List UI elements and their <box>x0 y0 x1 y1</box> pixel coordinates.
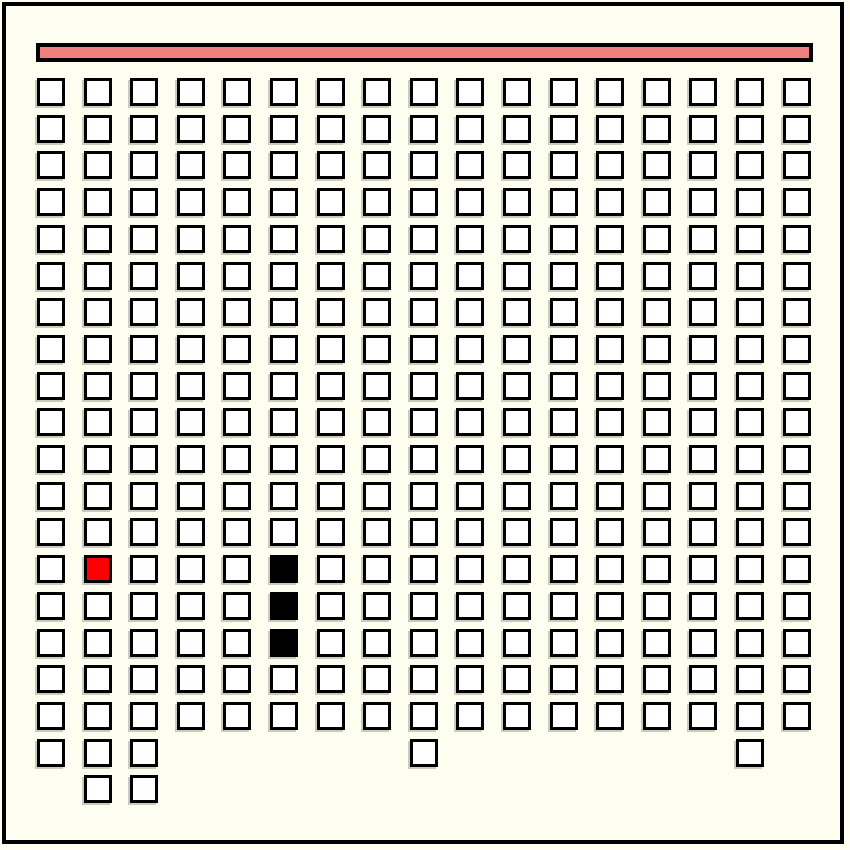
grid-cell[interactable] <box>736 445 764 473</box>
grid-cell[interactable] <box>130 482 158 510</box>
grid-cell[interactable] <box>503 702 531 730</box>
grid-cell[interactable] <box>643 445 671 473</box>
grid-cell[interactable] <box>643 555 671 583</box>
grid-cell[interactable] <box>363 555 391 583</box>
grid-cell[interactable] <box>317 592 345 620</box>
grid-cell[interactable] <box>783 408 811 436</box>
grid-cell[interactable] <box>363 188 391 216</box>
grid-cell[interactable] <box>736 262 764 290</box>
grid-cell[interactable] <box>736 665 764 693</box>
grid-cell[interactable] <box>736 335 764 363</box>
grid-cell[interactable] <box>410 739 438 767</box>
grid-cell[interactable] <box>503 555 531 583</box>
grid-cell[interactable] <box>550 482 578 510</box>
grid-cell[interactable] <box>270 408 298 436</box>
grid-cell[interactable] <box>270 151 298 179</box>
grid-cell[interactable] <box>84 298 112 326</box>
grid-cell[interactable] <box>270 665 298 693</box>
grid-cell[interactable] <box>317 482 345 510</box>
grid-cell[interactable] <box>270 702 298 730</box>
grid-cell[interactable] <box>783 298 811 326</box>
grid-cell[interactable] <box>550 151 578 179</box>
grid-cell[interactable] <box>410 445 438 473</box>
grid-cell[interactable] <box>363 78 391 106</box>
grid-cell[interactable] <box>177 372 205 400</box>
grid-cell[interactable] <box>223 518 251 546</box>
grid-cell[interactable] <box>596 592 624 620</box>
grid-cell[interactable] <box>783 482 811 510</box>
grid-cell[interactable] <box>689 115 717 143</box>
grid-cell[interactable] <box>317 665 345 693</box>
grid-cell[interactable] <box>643 335 671 363</box>
grid-cell[interactable] <box>410 555 438 583</box>
grid-cell[interactable] <box>130 555 158 583</box>
grid-cell[interactable] <box>783 115 811 143</box>
grid-cell[interactable] <box>503 225 531 253</box>
grid-cell[interactable] <box>736 555 764 583</box>
grid-cell[interactable] <box>736 702 764 730</box>
grid-cell[interactable] <box>130 739 158 767</box>
grid-cell[interactable] <box>363 445 391 473</box>
grid-cell[interactable] <box>410 408 438 436</box>
grid-cell[interactable] <box>689 335 717 363</box>
grid-cell[interactable] <box>130 518 158 546</box>
grid-cell[interactable] <box>130 372 158 400</box>
grid-cell[interactable] <box>223 408 251 436</box>
grid-cell[interactable] <box>596 665 624 693</box>
grid-cell[interactable] <box>130 592 158 620</box>
grid-cell[interactable] <box>410 188 438 216</box>
grid-cell[interactable] <box>317 188 345 216</box>
grid-cell[interactable] <box>84 702 112 730</box>
grid-cell[interactable] <box>270 518 298 546</box>
grid-cell[interactable] <box>130 298 158 326</box>
grid-cell[interactable] <box>363 262 391 290</box>
grid-cell[interactable] <box>84 555 112 583</box>
grid-cell[interactable] <box>643 592 671 620</box>
grid-cell[interactable] <box>503 372 531 400</box>
grid-cell[interactable] <box>84 408 112 436</box>
grid-cell[interactable] <box>736 188 764 216</box>
grid-cell[interactable] <box>317 115 345 143</box>
grid-cell[interactable] <box>550 188 578 216</box>
grid-cell[interactable] <box>689 151 717 179</box>
grid-cell[interactable] <box>783 335 811 363</box>
grid-cell[interactable] <box>317 335 345 363</box>
grid-cell[interactable] <box>223 372 251 400</box>
grid-cell[interactable] <box>84 739 112 767</box>
grid-cell[interactable] <box>37 629 65 657</box>
grid-cell[interactable] <box>37 482 65 510</box>
grid-cell[interactable] <box>783 78 811 106</box>
grid-cell[interactable] <box>37 188 65 216</box>
grid-cell[interactable] <box>270 629 298 657</box>
grid-cell[interactable] <box>736 482 764 510</box>
grid-cell[interactable] <box>689 408 717 436</box>
grid-cell[interactable] <box>317 629 345 657</box>
grid-cell[interactable] <box>783 445 811 473</box>
grid-cell[interactable] <box>689 262 717 290</box>
grid-cell[interactable] <box>689 518 717 546</box>
grid-cell[interactable] <box>503 262 531 290</box>
grid-cell[interactable] <box>317 372 345 400</box>
grid-cell[interactable] <box>410 298 438 326</box>
grid-cell[interactable] <box>130 702 158 730</box>
grid-cell[interactable] <box>503 151 531 179</box>
grid-cell[interactable] <box>410 665 438 693</box>
grid-cell[interactable] <box>550 592 578 620</box>
grid-cell[interactable] <box>550 665 578 693</box>
grid-cell[interactable] <box>736 78 764 106</box>
grid-cell[interactable] <box>37 518 65 546</box>
grid-cell[interactable] <box>177 629 205 657</box>
grid-cell[interactable] <box>736 151 764 179</box>
grid-cell[interactable] <box>317 262 345 290</box>
grid-cell[interactable] <box>410 225 438 253</box>
grid-cell[interactable] <box>363 372 391 400</box>
grid-cell[interactable] <box>456 445 484 473</box>
grid-cell[interactable] <box>130 629 158 657</box>
grid-cell[interactable] <box>84 115 112 143</box>
grid-cell[interactable] <box>84 518 112 546</box>
grid-cell[interactable] <box>223 115 251 143</box>
grid-cell[interactable] <box>456 665 484 693</box>
grid-cell[interactable] <box>130 225 158 253</box>
grid-cell[interactable] <box>177 335 205 363</box>
grid-cell[interactable] <box>363 592 391 620</box>
grid-cell[interactable] <box>503 335 531 363</box>
grid-cell[interactable] <box>456 592 484 620</box>
grid-cell[interactable] <box>503 408 531 436</box>
grid-cell[interactable] <box>783 665 811 693</box>
grid-cell[interactable] <box>270 482 298 510</box>
grid-cell[interactable] <box>456 298 484 326</box>
grid-cell[interactable] <box>550 298 578 326</box>
grid-cell[interactable] <box>550 262 578 290</box>
grid-cell[interactable] <box>596 445 624 473</box>
grid-cell[interactable] <box>550 115 578 143</box>
grid-cell[interactable] <box>317 518 345 546</box>
grid-cell[interactable] <box>363 408 391 436</box>
grid-cell[interactable] <box>130 151 158 179</box>
grid-cell[interactable] <box>84 592 112 620</box>
grid-cell[interactable] <box>177 151 205 179</box>
grid-cell[interactable] <box>37 739 65 767</box>
grid-cell[interactable] <box>410 151 438 179</box>
grid-cell[interactable] <box>130 335 158 363</box>
grid-cell[interactable] <box>456 372 484 400</box>
grid-cell[interactable] <box>736 739 764 767</box>
grid-cell[interactable] <box>596 115 624 143</box>
grid-cell[interactable] <box>410 372 438 400</box>
grid-cell[interactable] <box>177 665 205 693</box>
grid-cell[interactable] <box>503 78 531 106</box>
grid-cell[interactable] <box>317 555 345 583</box>
grid-cell[interactable] <box>363 665 391 693</box>
grid-cell[interactable] <box>37 298 65 326</box>
grid-cell[interactable] <box>37 555 65 583</box>
grid-cell[interactable] <box>410 262 438 290</box>
grid-cell[interactable] <box>130 445 158 473</box>
grid-cell[interactable] <box>223 335 251 363</box>
grid-cell[interactable] <box>84 372 112 400</box>
grid-cell[interactable] <box>783 188 811 216</box>
grid-cell[interactable] <box>596 262 624 290</box>
grid-cell[interactable] <box>270 115 298 143</box>
grid-cell[interactable] <box>317 445 345 473</box>
grid-cell[interactable] <box>270 262 298 290</box>
grid-cell[interactable] <box>270 372 298 400</box>
grid-cell[interactable] <box>37 151 65 179</box>
grid-cell[interactable] <box>550 408 578 436</box>
grid-cell[interactable] <box>177 482 205 510</box>
grid-cell[interactable] <box>84 482 112 510</box>
grid-cell[interactable] <box>783 225 811 253</box>
grid-cell[interactable] <box>37 592 65 620</box>
grid-cell[interactable] <box>596 408 624 436</box>
grid-cell[interactable] <box>410 629 438 657</box>
grid-cell[interactable] <box>550 335 578 363</box>
grid-cell[interactable] <box>456 555 484 583</box>
grid-cell[interactable] <box>130 408 158 436</box>
grid-cell[interactable] <box>596 188 624 216</box>
grid-cell[interactable] <box>270 78 298 106</box>
grid-cell[interactable] <box>456 629 484 657</box>
grid-cell[interactable] <box>596 629 624 657</box>
grid-cell[interactable] <box>410 518 438 546</box>
grid-cell[interactable] <box>177 225 205 253</box>
grid-cell[interactable] <box>363 482 391 510</box>
grid-cell[interactable] <box>550 702 578 730</box>
grid-cell[interactable] <box>503 482 531 510</box>
grid-cell[interactable] <box>223 225 251 253</box>
grid-cell[interactable] <box>783 702 811 730</box>
grid-cell[interactable] <box>410 482 438 510</box>
grid-cell[interactable] <box>177 592 205 620</box>
grid-cell[interactable] <box>689 372 717 400</box>
grid-cell[interactable] <box>689 225 717 253</box>
grid-cell[interactable] <box>503 115 531 143</box>
grid-cell[interactable] <box>84 188 112 216</box>
grid-cell[interactable] <box>363 629 391 657</box>
grid-cell[interactable] <box>596 702 624 730</box>
grid-cell[interactable] <box>689 482 717 510</box>
grid-cell[interactable] <box>363 298 391 326</box>
grid-cell[interactable] <box>643 151 671 179</box>
grid-cell[interactable] <box>689 702 717 730</box>
grid-cell[interactable] <box>550 225 578 253</box>
grid-cell[interactable] <box>456 262 484 290</box>
grid-cell[interactable] <box>456 408 484 436</box>
grid-cell[interactable] <box>84 445 112 473</box>
grid-cell[interactable] <box>456 518 484 546</box>
grid-cell[interactable] <box>177 78 205 106</box>
grid-cell[interactable] <box>317 78 345 106</box>
grid-cell[interactable] <box>736 298 764 326</box>
grid-cell[interactable] <box>84 775 112 803</box>
grid-cell[interactable] <box>643 408 671 436</box>
grid-cell[interactable] <box>643 518 671 546</box>
grid-cell[interactable] <box>410 592 438 620</box>
grid-cell[interactable] <box>130 262 158 290</box>
grid-cell[interactable] <box>37 115 65 143</box>
grid-cell[interactable] <box>177 445 205 473</box>
grid-cell[interactable] <box>643 629 671 657</box>
grid-cell[interactable] <box>130 665 158 693</box>
grid-cell[interactable] <box>736 629 764 657</box>
grid-cell[interactable] <box>503 298 531 326</box>
grid-cell[interactable] <box>130 78 158 106</box>
grid-cell[interactable] <box>223 151 251 179</box>
grid-cell[interactable] <box>596 225 624 253</box>
grid-cell[interactable] <box>177 115 205 143</box>
grid-cell[interactable] <box>270 298 298 326</box>
grid-cell[interactable] <box>270 225 298 253</box>
grid-cell[interactable] <box>130 775 158 803</box>
grid-cell[interactable] <box>689 78 717 106</box>
grid-cell[interactable] <box>736 372 764 400</box>
grid-cell[interactable] <box>643 115 671 143</box>
grid-cell[interactable] <box>783 151 811 179</box>
grid-cell[interactable] <box>456 151 484 179</box>
grid-cell[interactable] <box>84 262 112 290</box>
grid-cell[interactable] <box>84 335 112 363</box>
grid-cell[interactable] <box>736 518 764 546</box>
grid-cell[interactable] <box>270 555 298 583</box>
grid-cell[interactable] <box>177 298 205 326</box>
grid-cell[interactable] <box>643 702 671 730</box>
grid-cell[interactable] <box>736 225 764 253</box>
grid-cell[interactable] <box>317 702 345 730</box>
grid-cell[interactable] <box>550 445 578 473</box>
grid-cell[interactable] <box>130 115 158 143</box>
grid-cell[interactable] <box>503 629 531 657</box>
grid-cell[interactable] <box>783 262 811 290</box>
grid-cell[interactable] <box>410 702 438 730</box>
grid-cell[interactable] <box>130 188 158 216</box>
grid-cell[interactable] <box>643 665 671 693</box>
grid-cell[interactable] <box>503 592 531 620</box>
grid-cell[interactable] <box>177 555 205 583</box>
grid-cell[interactable] <box>223 482 251 510</box>
grid-cell[interactable] <box>596 298 624 326</box>
grid-cell[interactable] <box>223 298 251 326</box>
grid-cell[interactable] <box>317 225 345 253</box>
grid-cell[interactable] <box>270 188 298 216</box>
grid-cell[interactable] <box>456 482 484 510</box>
grid-cell[interactable] <box>37 225 65 253</box>
grid-cell[interactable] <box>550 629 578 657</box>
grid-cell[interactable] <box>363 335 391 363</box>
grid-cell[interactable] <box>596 335 624 363</box>
grid-cell[interactable] <box>550 518 578 546</box>
grid-cell[interactable] <box>503 518 531 546</box>
grid-cell[interactable] <box>689 445 717 473</box>
grid-cell[interactable] <box>596 78 624 106</box>
grid-cell[interactable] <box>456 78 484 106</box>
grid-cell[interactable] <box>37 335 65 363</box>
grid-cell[interactable] <box>177 188 205 216</box>
grid-cell[interactable] <box>689 298 717 326</box>
grid-cell[interactable] <box>736 592 764 620</box>
grid-cell[interactable] <box>596 151 624 179</box>
grid-cell[interactable] <box>643 78 671 106</box>
grid-cell[interactable] <box>550 372 578 400</box>
grid-cell[interactable] <box>177 408 205 436</box>
grid-cell[interactable] <box>456 225 484 253</box>
grid-cell[interactable] <box>783 372 811 400</box>
grid-cell[interactable] <box>736 115 764 143</box>
grid-cell[interactable] <box>177 262 205 290</box>
grid-cell[interactable] <box>456 702 484 730</box>
grid-cell[interactable] <box>689 592 717 620</box>
grid-cell[interactable] <box>270 335 298 363</box>
grid-cell[interactable] <box>596 555 624 583</box>
grid-cell[interactable] <box>223 592 251 620</box>
grid-cell[interactable] <box>363 518 391 546</box>
grid-cell[interactable] <box>270 445 298 473</box>
grid-cell[interactable] <box>596 372 624 400</box>
grid-cell[interactable] <box>37 702 65 730</box>
grid-cell[interactable] <box>503 445 531 473</box>
grid-cell[interactable] <box>223 555 251 583</box>
grid-cell[interactable] <box>37 665 65 693</box>
grid-cell[interactable] <box>596 518 624 546</box>
grid-cell[interactable] <box>223 702 251 730</box>
grid-cell[interactable] <box>456 188 484 216</box>
grid-cell[interactable] <box>84 151 112 179</box>
grid-cell[interactable] <box>783 592 811 620</box>
grid-cell[interactable] <box>643 188 671 216</box>
grid-cell[interactable] <box>410 78 438 106</box>
grid-cell[interactable] <box>317 408 345 436</box>
grid-cell[interactable] <box>177 518 205 546</box>
grid-cell[interactable] <box>550 555 578 583</box>
grid-cell[interactable] <box>37 445 65 473</box>
grid-cell[interactable] <box>689 629 717 657</box>
grid-cell[interactable] <box>223 629 251 657</box>
grid-cell[interactable] <box>689 555 717 583</box>
grid-cell[interactable] <box>643 225 671 253</box>
grid-cell[interactable] <box>37 262 65 290</box>
grid-cell[interactable] <box>456 115 484 143</box>
grid-cell[interactable] <box>223 665 251 693</box>
grid-cell[interactable] <box>37 408 65 436</box>
grid-cell[interactable] <box>689 665 717 693</box>
grid-cell[interactable] <box>410 335 438 363</box>
grid-cell[interactable] <box>37 372 65 400</box>
grid-cell[interactable] <box>84 225 112 253</box>
grid-cell[interactable] <box>783 629 811 657</box>
grid-cell[interactable] <box>84 78 112 106</box>
grid-cell[interactable] <box>783 518 811 546</box>
grid-cell[interactable] <box>643 482 671 510</box>
grid-cell[interactable] <box>503 188 531 216</box>
grid-cell[interactable] <box>363 115 391 143</box>
grid-cell[interactable] <box>503 665 531 693</box>
grid-cell[interactable] <box>550 78 578 106</box>
grid-cell[interactable] <box>223 78 251 106</box>
grid-cell[interactable] <box>363 225 391 253</box>
grid-cell[interactable] <box>223 445 251 473</box>
grid-cell[interactable] <box>270 592 298 620</box>
grid-cell[interactable] <box>410 115 438 143</box>
grid-cell[interactable] <box>643 262 671 290</box>
grid-cell[interactable] <box>223 262 251 290</box>
grid-cell[interactable] <box>783 555 811 583</box>
grid-cell[interactable] <box>596 482 624 510</box>
grid-cell[interactable] <box>736 408 764 436</box>
